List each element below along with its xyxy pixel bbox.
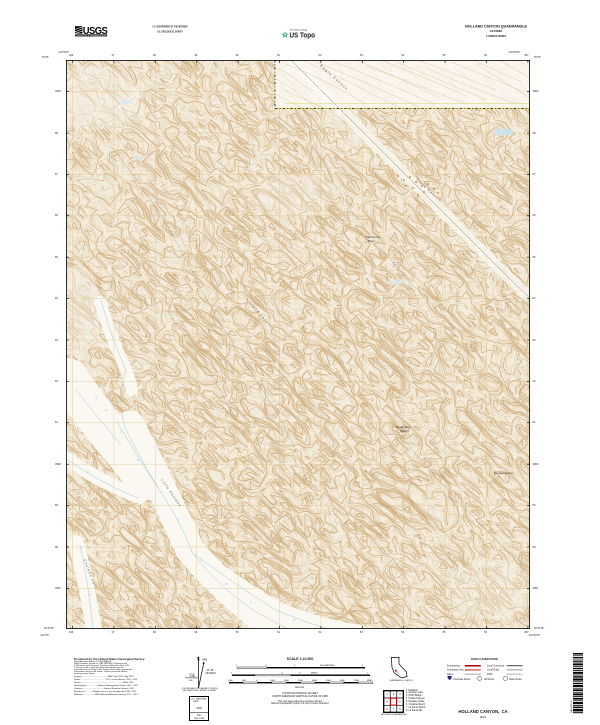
svg-text:1: 1 — [362, 665, 364, 667]
svg-text:Ramp: Ramp — [447, 673, 454, 676]
svg-text:US Topo: US Topo — [290, 31, 316, 40]
svg-text:Expressway: Expressway — [447, 665, 461, 668]
svg-text:1000: 1000 — [228, 680, 234, 682]
svg-text:204 MILS: 204 MILS — [206, 672, 217, 675]
svg-text:US Route: US Route — [484, 678, 495, 681]
svg-text:Local Road: Local Road — [487, 669, 500, 672]
svg-text:ISBN 978-1-61: ISBN 978-1-61 — [571, 699, 573, 713]
svg-text:Mine: Mine — [368, 239, 375, 243]
svg-text:ROAD CLASSIFICATION: ROAD CLASSIFICATION — [471, 658, 498, 661]
svg-text:GRID: GRID — [193, 701, 199, 703]
svg-text:Bennett Spring: Bennett Spring — [494, 471, 513, 475]
svg-text:8: 8 — [399, 708, 401, 711]
svg-text:State Route: State Route — [509, 678, 522, 681]
svg-text:(blank): (blank) — [400, 429, 409, 433]
svg-text:KILOMETERS: KILOMETERS — [320, 665, 335, 667]
svg-text:.5: .5 — [265, 665, 268, 667]
svg-text:FG: FG — [197, 713, 201, 717]
svg-text:2000: 2000 — [284, 680, 290, 682]
svg-text:7000: 7000 — [354, 680, 360, 682]
svg-text:GN: GN — [189, 680, 193, 682]
svg-text:FEET: FEET — [367, 680, 373, 682]
svg-text:3000: 3000 — [298, 680, 304, 682]
svg-text:MN: MN — [203, 658, 208, 662]
svg-text:6000: 6000 — [340, 680, 346, 682]
svg-text:4000: 4000 — [312, 680, 318, 682]
svg-text:METERS: METERS — [295, 687, 305, 689]
svg-text:GRID ZONE: GRID ZONE — [194, 718, 205, 720]
svg-text:4WD: 4WD — [487, 673, 493, 676]
svg-text:2: 2 — [393, 693, 395, 696]
svg-text:Local Connector: Local Connector — [487, 665, 505, 668]
svg-text:5: 5 — [399, 700, 401, 703]
svg-text:MILES: MILES — [311, 673, 318, 675]
svg-text:0: 0 — [256, 680, 258, 682]
svg-text:1: 1 — [231, 673, 233, 675]
svg-text:Interstate Route: Interstate Route — [453, 678, 471, 681]
svg-text:7: 7 — [393, 708, 395, 711]
svg-text:1: 1 — [386, 693, 388, 696]
svg-text:U.S. NATIONAL: U.S. NATIONAL — [191, 697, 207, 700]
svg-text:0: 0 — [299, 673, 301, 675]
svg-text:HOLLAND CANYON QUADRANGLE: HOLLAND CANYON QUADRANGLE — [465, 25, 528, 29]
svg-text:0: 0 — [294, 665, 296, 667]
svg-text:U.S. GEOLOGICAL SURVEY: U.S. GEOLOGICAL SURVEY — [157, 30, 183, 34]
svg-text:science for a changing world: science for a changing world — [76, 34, 106, 37]
svg-text:500: 500 — [242, 680, 246, 682]
svg-text:.5: .5 — [281, 673, 284, 675]
svg-text:3: 3 — [399, 693, 401, 696]
svg-text:6: 6 — [386, 708, 388, 711]
svg-text:4: 4 — [386, 700, 388, 703]
svg-text:7.5-MINUTE SERIES: 7.5-MINUTE SERIES — [486, 34, 506, 38]
svg-text:1: 1 — [236, 665, 238, 667]
svg-text:1: 1 — [367, 673, 369, 675]
svg-text:10S: 10S — [196, 706, 201, 710]
svg-text:5000: 5000 — [326, 680, 332, 682]
svg-text:CALIFORNIA: CALIFORNIA — [490, 29, 503, 33]
svg-text:U.S. DEPARTMENT OF THE INTERIO: U.S. DEPARTMENT OF THE INTERIOR — [153, 24, 188, 28]
svg-text:Secondary Hwy: Secondary Hwy — [447, 669, 465, 672]
svg-text:1000: 1000 — [270, 680, 276, 682]
